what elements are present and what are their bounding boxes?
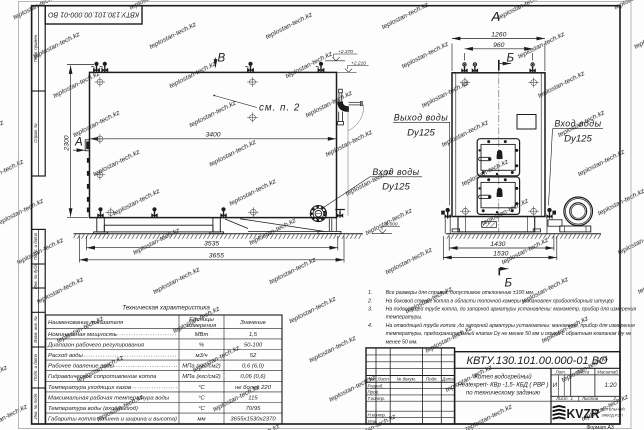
svg-text:Разраб.: Разраб. [368, 383, 384, 388]
svg-text:52: 52 [250, 353, 257, 359]
svg-text:Н.контр.: Н.контр. [368, 412, 387, 417]
svg-text:№ докум.: № докум. [397, 377, 416, 382]
svg-text:Температура воды (вход/выход): Температура воды (вход/выход) [48, 406, 138, 412]
svg-text:Листов: Листов [581, 396, 599, 401]
svg-text:И: И [553, 382, 558, 389]
svg-text:Максимальная рабочая температу: Максимальная рабочая температура воды [48, 395, 170, 401]
svg-text:0,06 (0,6): 0,06 (0,6) [240, 374, 265, 380]
svg-text:°С: °С [198, 395, 205, 401]
svg-text:4.: 4. [368, 323, 372, 329]
svg-text:1260: 1260 [491, 32, 506, 39]
svg-text:1530: 1530 [493, 250, 508, 257]
svg-text:Значение: Значение [240, 320, 267, 326]
svg-text:Инв. № подл.: Инв. № подл. [33, 393, 38, 420]
svg-text:+2.210: +2.210 [351, 60, 366, 66]
svg-text:Dy125: Dy125 [407, 128, 435, 139]
svg-text:Лист: Лист [376, 377, 389, 382]
svg-text:Масса: Масса [576, 369, 590, 374]
svg-text:Техническая характеристика: Техническая характеристика [122, 305, 210, 312]
svg-text:Heatexpert- КВр -1,5- КБД ( РВ: Heatexpert- КВр -1,5- КБД ( РВР ) [458, 382, 549, 388]
svg-text:1:20: 1:20 [604, 382, 617, 389]
svg-text:Взам. инв. №: Взам. инв. № [33, 316, 38, 343]
svg-text:Диапазон рабочего регулировани: Диапазон рабочего регулирования [47, 342, 145, 348]
svg-text:1430: 1430 [490, 241, 505, 248]
svg-text:Справ. №: Справ. № [33, 123, 38, 143]
svg-text:%: % [199, 342, 204, 348]
svg-text:Утв.: Утв. [368, 419, 378, 424]
svg-text:Наименование показателя: Наименование показателя [48, 320, 124, 326]
svg-text:На подводящей трубе котла, д: На подводящей трубе котла, до запорной а… [386, 306, 637, 313]
svg-text:Гидравлическое сопротивление к: Гидравлическое сопротивление котла [48, 374, 157, 380]
svg-text:КВТУ.130.101.00.000-01 ВО: КВТУ.130.101.00.000-01 ВО [467, 355, 608, 367]
svg-text:3655: 3655 [209, 253, 224, 260]
svg-text:по техническому заданию: по техническому заданию [466, 390, 541, 396]
svg-text:МПа (кгс/см2): МПа (кгс/см2) [182, 364, 221, 370]
svg-text:измерения: измерения [187, 323, 217, 329]
svg-text:Вход воды: Вход воды [372, 167, 419, 177]
svg-text:Дата: Дата [441, 377, 454, 382]
svg-text:Б: Б [507, 53, 515, 65]
svg-text:Рабочее давление воды: Рабочее давление воды [48, 364, 115, 370]
svg-text:На отводящей трубе котла ,до з: На отводящей трубе котла ,до запорной ар… [386, 322, 635, 329]
svg-text:1,5: 1,5 [249, 332, 258, 338]
svg-text:Лист: Лист [555, 396, 568, 401]
svg-text:температуры, предохранительный: температуры, предохранительный клапан Dу… [386, 330, 632, 337]
svg-text:Номинальная мощность: Номинальная мощность [48, 332, 117, 338]
svg-text:°С: °С [198, 385, 205, 391]
svg-text:2: 2 [613, 396, 617, 401]
svg-text:Лит.: Лит. [555, 369, 566, 374]
svg-text:температуры.: температуры. [386, 315, 423, 321]
svg-text:ЗАВОД РЭП: ЗАВОД РЭП [602, 414, 623, 418]
svg-text:МПа (кгс/см2): МПа (кгс/см2) [182, 374, 221, 380]
svg-text:3655х1530х2370: 3655х1530х2370 [230, 417, 276, 423]
svg-text:+2.370: +2.370 [338, 49, 353, 55]
svg-text:50-100: 50-100 [244, 342, 263, 348]
svg-text:70/95: 70/95 [246, 406, 261, 412]
svg-text:м3/ч: м3/ч [196, 353, 208, 359]
svg-text:Габариты котла (длинна и ширин: Габариты котла (длинна и ширина и высота… [48, 417, 177, 423]
svg-text:2.: 2. [367, 298, 372, 304]
svg-text:Инв. № дубл.: Инв. № дубл. [33, 263, 38, 289]
svg-text:А: А [74, 137, 83, 149]
svg-text:Изм.: Изм. [366, 377, 375, 382]
svg-text:На боковой стенке котла в обла: На боковой стенке котла в области топочн… [386, 297, 614, 304]
svg-text:Котел водогрейный: Котел водогрейный [474, 373, 532, 380]
svg-text:МВт: МВт [195, 332, 209, 338]
svg-text:Т.контр.: Т.контр. [368, 396, 386, 401]
svg-text:КВТУ.130.101.00.000-01 ВО: КВТУ.130.101.00.000-01 ВО [48, 11, 139, 20]
svg-text:Масштаб: Масштаб [597, 369, 618, 374]
svg-text:Выход воды: Выход воды [394, 113, 448, 123]
svg-text:не более 220: не более 220 [235, 385, 272, 391]
svg-text:Подп. и дата: Подп. и дата [33, 232, 38, 260]
svg-text:Формат А3: Формат А3 [586, 425, 614, 430]
svg-text:115: 115 [248, 395, 258, 401]
svg-text:Dy125: Dy125 [564, 134, 592, 145]
svg-text:0.000: 0.000 [385, 221, 397, 227]
svg-text:В: В [218, 53, 226, 65]
svg-text:Все размеры для справок, допус: Все размеры для справок, допустимое откл… [386, 290, 535, 296]
svg-text:3535: 3535 [204, 241, 219, 248]
svg-text:менее 50 мм.: менее 50 мм. [386, 339, 418, 345]
svg-text:Пров.: Пров. [368, 390, 380, 395]
svg-text:Б: Б [505, 277, 513, 289]
svg-text:Расход воды: Расход воды [48, 353, 84, 359]
svg-text:2300: 2300 [64, 135, 71, 151]
svg-text:Dy125: Dy125 [382, 182, 410, 193]
svg-text:1.: 1. [368, 290, 372, 296]
svg-text:Подп.: Подп. [426, 377, 438, 382]
svg-text:960: 960 [493, 42, 505, 49]
svg-text:3400: 3400 [205, 132, 220, 139]
svg-text:А: А [491, 9, 501, 24]
svg-text:КОТЕЛЬНЫЙ: КОТЕЛЬНЫЙ [602, 408, 625, 412]
svg-text:°С: °С [198, 406, 205, 412]
svg-text:0,6 (6,0): 0,6 (6,0) [242, 364, 264, 370]
svg-text:см. п. 2: см. п. 2 [259, 103, 300, 114]
svg-text:Перв. примен.: Перв. примен. [33, 34, 38, 63]
svg-text:Температура уходящих газов: Температура уходящих газов [48, 385, 131, 391]
svg-text:KVZR: KVZR [567, 406, 600, 421]
svg-text:Вход воды: Вход воды [554, 119, 601, 129]
svg-text:мм: мм [197, 417, 205, 423]
svg-text:Подп. и дата: Подп. и дата [33, 353, 38, 381]
svg-text:3.: 3. [368, 307, 372, 313]
